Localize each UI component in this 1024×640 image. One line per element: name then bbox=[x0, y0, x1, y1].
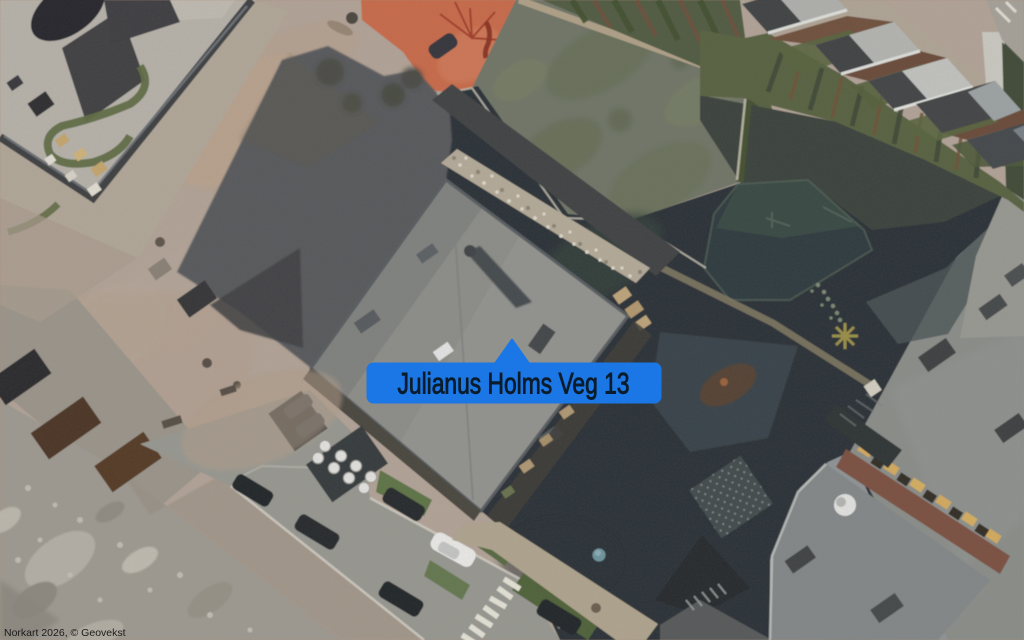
svg-text:Julianus Holms Veg 13: Julianus Holms Veg 13 bbox=[398, 368, 630, 401]
svg-text:Norkart 2026, © Geovekst: Norkart 2026, © Geovekst bbox=[4, 627, 126, 639]
